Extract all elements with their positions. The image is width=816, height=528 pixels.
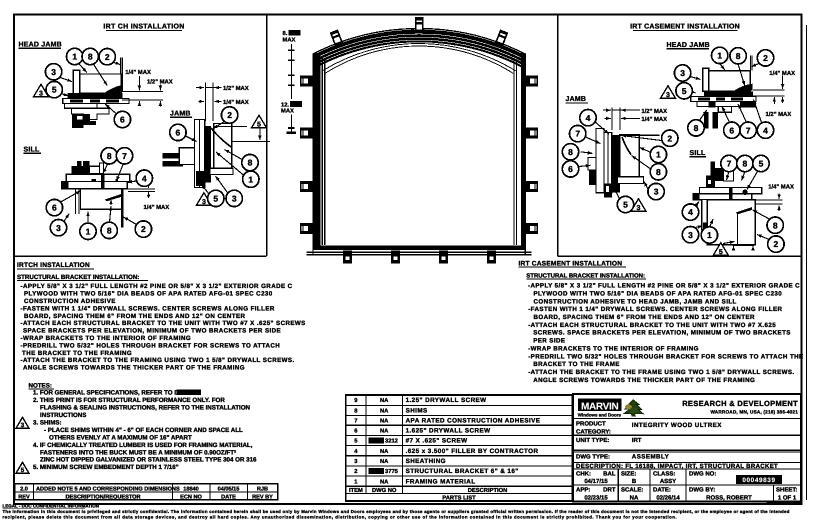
svg-text:3775: 3775 bbox=[385, 468, 399, 475]
svg-text:IRT: IRT bbox=[632, 437, 642, 444]
svg-text:3: 3 bbox=[202, 199, 206, 206]
svg-text:REV: REV bbox=[18, 494, 30, 500]
svg-text:FLASHING & SEALING INSTRUCTION: FLASHING & SEALING INSTRUCTIONS, REFER T… bbox=[40, 404, 251, 411]
svg-text:CONSTRUCTION ADHESIVE TO HEAD: CONSTRUCTION ADHESIVE TO HEAD JAMB, JAMB… bbox=[534, 298, 737, 305]
svg-text:CONSTRUCTION ADHESIVE: CONSTRUCTION ADHESIVE bbox=[24, 298, 116, 305]
svg-text:1/2" MAX: 1/2" MAX bbox=[641, 108, 667, 115]
svg-text:1: 1 bbox=[86, 226, 91, 236]
svg-text:NA: NA bbox=[380, 429, 389, 435]
svg-text:SHEATHING: SHEATHING bbox=[406, 458, 446, 465]
svg-text:8: 8 bbox=[107, 225, 112, 235]
svg-text:3: 3 bbox=[688, 230, 693, 240]
svg-text:1/4" MAX: 1/4" MAX bbox=[641, 116, 667, 123]
svg-text:8: 8 bbox=[743, 159, 748, 169]
svg-text:LEGAL - DOC CONFIDENTIAL INFOR: LEGAL - DOC CONFIDENTIAL INFORMATION bbox=[3, 503, 100, 508]
svg-text:SILL: SILL bbox=[24, 146, 40, 153]
svg-text:-ATTACH THE BRACKET TO THE FRA: -ATTACH THE BRACKET TO THE FRAMING USING… bbox=[21, 357, 295, 364]
svg-text:NA: NA bbox=[380, 398, 389, 404]
svg-text:3: 3 bbox=[39, 90, 43, 97]
svg-text:DWG TYPE:: DWG TYPE: bbox=[576, 454, 610, 461]
svg-text:-ATTACH EACH STRUCTURAL BRACKE: -ATTACH EACH STRUCTURAL BRACKET TO THE U… bbox=[528, 322, 776, 329]
svg-text:7: 7 bbox=[354, 418, 357, 424]
svg-text:HEAD JAMB: HEAD JAMB bbox=[667, 42, 710, 49]
svg-text:12.: 12. bbox=[281, 101, 289, 108]
svg-text:7: 7 bbox=[122, 151, 127, 161]
svg-text:DRT: DRT bbox=[603, 487, 616, 494]
svg-text:3: 3 bbox=[680, 68, 685, 78]
svg-text:Windows and Doors: Windows and Doors bbox=[578, 412, 622, 417]
svg-text:1/4" MAX: 1/4" MAX bbox=[144, 204, 170, 211]
svg-text:STRUCTURAL BRACKET INSTALLATIO: STRUCTURAL BRACKET INSTALLATION: bbox=[526, 273, 645, 280]
svg-text:1: 1 bbox=[717, 50, 722, 60]
svg-text:APA RATED CONSTRUCTION ADHESIV: APA RATED CONSTRUCTION ADHESIVE bbox=[406, 417, 541, 424]
svg-text:04/05/15: 04/05/15 bbox=[218, 485, 240, 492]
svg-text:8.: 8. bbox=[283, 30, 288, 37]
svg-text:4: 4 bbox=[763, 125, 768, 135]
svg-text:1 OF 1: 1 OF 1 bbox=[778, 494, 797, 501]
svg-text:1.625" DRYWALL SCREW: 1.625" DRYWALL SCREW bbox=[406, 428, 491, 435]
svg-text:4: 4 bbox=[688, 207, 693, 217]
svg-text:2: 2 bbox=[774, 239, 779, 249]
svg-text:FRAMING MATERIAL: FRAMING MATERIAL bbox=[406, 478, 476, 485]
svg-text:OTHERS EVENLY AT A MAXIMUM OF: OTHERS EVENLY AT A MAXIMUM OF 16" APART bbox=[49, 434, 192, 441]
svg-text:DESCRIPTION: DESCRIPTION bbox=[468, 487, 508, 494]
svg-text:-APPLY 5/8" X 3 1/2" FULL LENG: -APPLY 5/8" X 3 1/2" FULL LENGTH #2 PINE… bbox=[528, 283, 800, 290]
svg-text:02/23/15: 02/23/15 bbox=[584, 494, 608, 501]
svg-text:-WRAP BRACKETS TO THE INTERIOR: -WRAP BRACKETS TO THE INTERIOR OF FRAMIN… bbox=[21, 335, 192, 342]
svg-text:1: 1 bbox=[248, 174, 253, 184]
svg-text:HEAD JAMB: HEAD JAMB bbox=[19, 41, 62, 48]
svg-text:3: 3 bbox=[232, 193, 237, 203]
svg-text:1/2" MAX: 1/2" MAX bbox=[223, 85, 249, 92]
svg-text:JAMB: JAMB bbox=[170, 110, 191, 117]
svg-text:3212: 3212 bbox=[385, 438, 398, 445]
svg-text:-FASTEN WITH 1 1/4" DRYWALL SC: -FASTEN WITH 1 1/4" DRYWALL SCREWS. CENT… bbox=[21, 305, 275, 312]
svg-text:4: 4 bbox=[586, 113, 591, 123]
svg-text:8: 8 bbox=[694, 123, 699, 133]
svg-text:MAX: MAX bbox=[283, 38, 296, 44]
svg-text:-PREDRILL TWO 5/32" HOLES THRO: -PREDRILL TWO 5/32" HOLES THROUGH BRACKE… bbox=[21, 342, 281, 349]
svg-text:RJB: RJB bbox=[257, 486, 268, 492]
svg-text:PER SIDE: PER SIDE bbox=[533, 338, 565, 345]
svg-text:-ATTACH THE BRACKET TO THE FRA: -ATTACH THE BRACKET TO THE FRAME USING T… bbox=[528, 369, 794, 376]
svg-text:ZINC HOT DIPPED GALVANIZED OR: ZINC HOT DIPPED GALVANIZED OR STAINLESS … bbox=[40, 457, 257, 464]
svg-text:8: 8 bbox=[88, 52, 93, 62]
svg-text:3: 3 bbox=[654, 187, 659, 197]
svg-text:5: 5 bbox=[52, 85, 57, 95]
svg-text:1: 1 bbox=[72, 52, 77, 62]
svg-text:MAX: MAX bbox=[281, 109, 294, 115]
svg-text:5: 5 bbox=[257, 121, 261, 128]
svg-text:2. THIS PRINT IS FOR STRUCTURA: 2. THIS PRINT IS FOR STRUCTURAL PERFORMA… bbox=[33, 397, 225, 404]
svg-text:NA: NA bbox=[380, 459, 389, 465]
svg-text:2: 2 bbox=[763, 53, 768, 63]
svg-text:6: 6 bbox=[52, 203, 57, 213]
svg-text:SHEET:: SHEET: bbox=[776, 487, 797, 494]
svg-text:UNIT TYPE:: UNIT TYPE: bbox=[576, 437, 609, 444]
svg-text:-PREDRILL TWO 5/32" HOLES THRO: -PREDRILL TWO 5/32" HOLES THROUGH BRACKE… bbox=[528, 353, 803, 360]
svg-text:1/4" MAX: 1/4" MAX bbox=[768, 183, 794, 190]
svg-text:1/4" MAX: 1/4" MAX bbox=[769, 70, 795, 77]
svg-text:BRACKET TO THE FRAME: BRACKET TO THE FRAME bbox=[533, 361, 620, 368]
svg-text:SCALE:: SCALE: bbox=[621, 487, 643, 494]
svg-text:1: 1 bbox=[707, 230, 712, 240]
svg-text:REV BY: REV BY bbox=[252, 494, 273, 500]
svg-text:CLASS:: CLASS: bbox=[653, 471, 675, 478]
svg-text:5: 5 bbox=[21, 467, 25, 474]
svg-text:ITEM: ITEM bbox=[349, 488, 363, 494]
svg-text:INTEGRITY WOOD ULTREX: INTEGRITY WOOD ULTREX bbox=[632, 422, 722, 429]
svg-text:IRTCH INSTALLATION: IRTCH INSTALLATION bbox=[17, 262, 90, 269]
svg-text:DATE:: DATE: bbox=[653, 487, 671, 494]
svg-text:CATEGORY:: CATEGORY: bbox=[576, 429, 611, 436]
svg-text:5: 5 bbox=[759, 159, 764, 169]
svg-text:ANGLE SCREWS TOWARDS THE THICK: ANGLE SCREWS TOWARDS THE THICKER PART OF… bbox=[23, 365, 245, 372]
svg-text:1: 1 bbox=[656, 150, 661, 160]
svg-text:IRT CH INSTALLATION: IRT CH INSTALLATION bbox=[103, 24, 184, 31]
svg-text:SHIMS: SHIMS bbox=[406, 407, 428, 414]
svg-text:8: 8 bbox=[568, 147, 573, 157]
svg-text:IRT CASEMENT INSTALLATION: IRT CASEMENT INSTALLATION bbox=[519, 260, 623, 267]
svg-text:3: 3 bbox=[637, 205, 641, 212]
svg-text:SPACE BRACKETS PER ELEVATION,: SPACE BRACKETS PER ELEVATION, MINIMUM OF… bbox=[23, 328, 281, 335]
svg-text:STRUCTURAL BRACKET 6" & 16": STRUCTURAL BRACKET 6" & 16" bbox=[406, 468, 519, 475]
svg-text:DESCRIPTION/REQUESTOR: DESCRIPTION/REQUESTOR bbox=[65, 493, 140, 500]
svg-text:8: 8 bbox=[656, 167, 661, 177]
svg-text:ROSS, ROBERT: ROSS, ROBERT bbox=[706, 494, 752, 501]
svg-text:1. FOR GENERAL SPECIFICATIONS,: 1. FOR GENERAL SPECIFICATIONS, REFER TO … bbox=[33, 390, 189, 397]
svg-text:DWG NO:: DWG NO: bbox=[689, 471, 716, 478]
svg-text:7: 7 bbox=[575, 129, 580, 139]
svg-text:BOARD, SPACING THEM 6" FROM TH: BOARD, SPACING THEM 6" FROM THE ENDS AND… bbox=[24, 313, 246, 320]
svg-text:DWG NO: DWG NO bbox=[372, 487, 397, 494]
svg-text:DATE: DATE bbox=[221, 494, 236, 500]
svg-text:6: 6 bbox=[120, 115, 125, 125]
svg-text:NA: NA bbox=[380, 418, 389, 424]
svg-text:2: 2 bbox=[227, 110, 232, 120]
svg-text:3: 3 bbox=[56, 223, 61, 233]
svg-text:18840: 18840 bbox=[183, 486, 199, 492]
svg-text:- PLACE SHIMS WITHIN 4" - 6" O: - PLACE SHIMS WITHIN 4" - 6" OF EACH COR… bbox=[44, 427, 243, 434]
svg-text:5. MINIMUM SCREW EMBEDMENT DEP: 5. MINIMUM SCREW EMBEDMENT DEPTH 1 7/16" bbox=[33, 464, 179, 471]
svg-text:4: 4 bbox=[142, 173, 147, 183]
svg-text:ASSY: ASSY bbox=[660, 478, 676, 485]
svg-text:PARTS LIST: PARTS LIST bbox=[442, 494, 476, 501]
svg-text:-WRAP BRACKETS TO THE INTERIOR: -WRAP BRACKETS TO THE INTERIOR OF FRAMIN… bbox=[528, 345, 699, 352]
svg-text:2: 2 bbox=[667, 133, 672, 143]
svg-text:FASTENERS INTO THE BUCK MUST B: FASTENERS INTO THE BUCK MUST BE A MINIMU… bbox=[40, 449, 236, 456]
svg-text:NA: NA bbox=[630, 494, 639, 501]
svg-text:1/2" MAX: 1/2" MAX bbox=[147, 78, 173, 85]
svg-text:2: 2 bbox=[105, 52, 110, 62]
svg-text:WARROAD, MN, USA, (218) 386-40: WARROAD, MN, USA, (218) 386-4021 bbox=[710, 410, 798, 415]
svg-text:PLYWOOD WITH TWO 5/16" DIA BEA: PLYWOOD WITH TWO 5/16" DIA BEADS OF APA … bbox=[534, 291, 783, 298]
svg-text:SCREWS. SPACE BRACKETS PER ELE: SCREWS. SPACE BRACKETS PER ELEVATION, MI… bbox=[533, 330, 791, 337]
svg-text:3. SHIMS:: 3. SHIMS: bbox=[33, 419, 62, 426]
svg-text:7: 7 bbox=[727, 159, 732, 169]
svg-text:5: 5 bbox=[213, 193, 218, 203]
svg-text:5: 5 bbox=[623, 200, 628, 210]
svg-text:DESCRIPTION: FL 16188, IMPACT: DESCRIPTION: FL 16188, IMPACT, IRT, STRU… bbox=[576, 463, 778, 470]
svg-text:STRUCTURAL BRACKET INSTALLATIO: STRUCTURAL BRACKET INSTALLATION: bbox=[17, 274, 139, 281]
svg-text:6: 6 bbox=[176, 127, 181, 137]
svg-text:6: 6 bbox=[729, 125, 734, 135]
svg-text:2: 2 bbox=[354, 468, 357, 475]
svg-text:PRODUCT: PRODUCT bbox=[576, 421, 606, 428]
svg-text:RESEARCH & DEVELOPMENT: RESEARCH & DEVELOPMENT bbox=[682, 399, 798, 408]
svg-text:NA: NA bbox=[380, 479, 389, 485]
svg-text:1/4" MAX: 1/4" MAX bbox=[125, 69, 151, 76]
svg-text:1.25" DRYWALL SCREW: 1.25" DRYWALL SCREW bbox=[406, 397, 487, 404]
svg-text:B: B bbox=[632, 478, 637, 485]
svg-text:1/4" MAX: 1/4" MAX bbox=[223, 99, 249, 106]
svg-text:8: 8 bbox=[736, 51, 741, 61]
svg-text:SILL: SILL bbox=[690, 150, 706, 157]
svg-text:00049839: 00049839 bbox=[742, 477, 775, 484]
svg-text:.625 x 3.500" FILLER BY CONTRA: .625 x 3.500" FILLER BY CONTRACTOR bbox=[406, 448, 539, 455]
svg-text:recipient, please delete this: recipient, please delete this document f… bbox=[3, 515, 678, 520]
svg-text:2.0: 2.0 bbox=[20, 486, 28, 492]
svg-text:The information in this docume: The information in this document is priv… bbox=[3, 509, 790, 514]
svg-text:IRT CASEMENT INSTALLATION: IRT CASEMENT INSTALLATION bbox=[630, 24, 740, 31]
svg-text:1/2" MAX: 1/2" MAX bbox=[766, 111, 792, 118]
svg-text:5: 5 bbox=[719, 249, 723, 256]
svg-text:MARVIN: MARVIN bbox=[581, 401, 619, 412]
svg-text:THE BRACKET TO THE FRAMING: THE BRACKET TO THE FRAMING bbox=[22, 350, 132, 357]
svg-text:3: 3 bbox=[666, 92, 670, 99]
svg-text:-APPLY 5/8" X 3 1/2" FULL LENG: -APPLY 5/8" X 3 1/2" FULL LENGTH #2 PINE… bbox=[21, 283, 293, 290]
svg-text:ADDED NOTE 5 AND CORRESPONDING: ADDED NOTE 5 AND CORRESPONDING DIMENSION… bbox=[36, 486, 180, 492]
svg-text:2: 2 bbox=[141, 224, 146, 234]
svg-text:04/17/15: 04/17/15 bbox=[584, 478, 608, 485]
svg-text:BOARD, SPACING THEM 6" FROM TH: BOARD, SPACING THEM 6" FROM THE ENDS AND… bbox=[534, 314, 756, 321]
svg-text:BAL: BAL bbox=[603, 471, 616, 478]
svg-text:3: 3 bbox=[21, 422, 25, 429]
svg-text:ANGLE SCREWS TOWARDS THE THICK: ANGLE SCREWS TOWARDS THE THICKER PART OF… bbox=[533, 377, 755, 384]
svg-text:SIZE:: SIZE: bbox=[621, 471, 636, 478]
svg-text:INSTRUCTIONS: INSTRUCTIONS bbox=[40, 412, 86, 419]
svg-text:NOTES:: NOTES: bbox=[29, 382, 52, 389]
svg-text:3: 3 bbox=[51, 67, 56, 77]
svg-text:NA: NA bbox=[380, 408, 389, 414]
svg-text:ECN NO: ECN NO bbox=[180, 494, 202, 500]
svg-text:DWG BY:: DWG BY: bbox=[689, 487, 715, 494]
svg-text:NA: NA bbox=[380, 449, 389, 455]
svg-text:-ATTACH EACH STRUCTURAL BRACKE: -ATTACH EACH STRUCTURAL BRACKET TO THE U… bbox=[21, 320, 306, 327]
svg-text:4. IF CHEMICALLY TREATED LUMBE: 4. IF CHEMICALLY TREATED LUMBER IS USED … bbox=[33, 442, 253, 449]
svg-text:-FASTEN WITH 1 1/4" DRYWALL SC: -FASTEN WITH 1 1/4" DRYWALL SCREWS. CENT… bbox=[528, 306, 782, 313]
svg-text:6: 6 bbox=[568, 164, 573, 174]
svg-text:8: 8 bbox=[773, 220, 778, 230]
svg-text:CHK:: CHK: bbox=[576, 471, 591, 478]
svg-text:JAMB: JAMB bbox=[566, 96, 587, 103]
svg-text:8: 8 bbox=[248, 158, 253, 168]
svg-text:8: 8 bbox=[107, 151, 112, 161]
svg-text:ASSEMBLY: ASSEMBLY bbox=[632, 454, 670, 461]
svg-text:PLYWOOD WITH TWO 5/16" DIA BEA: PLYWOOD WITH TWO 5/16" DIA BEADS OF APA … bbox=[24, 291, 273, 298]
svg-text:5: 5 bbox=[682, 86, 687, 96]
svg-text:02/26/14: 02/26/14 bbox=[656, 494, 680, 501]
svg-text:#7 X .625" SCREW: #7 X .625" SCREW bbox=[406, 438, 468, 445]
svg-text:APP:: APP: bbox=[576, 487, 590, 494]
svg-text:7: 7 bbox=[746, 125, 751, 135]
